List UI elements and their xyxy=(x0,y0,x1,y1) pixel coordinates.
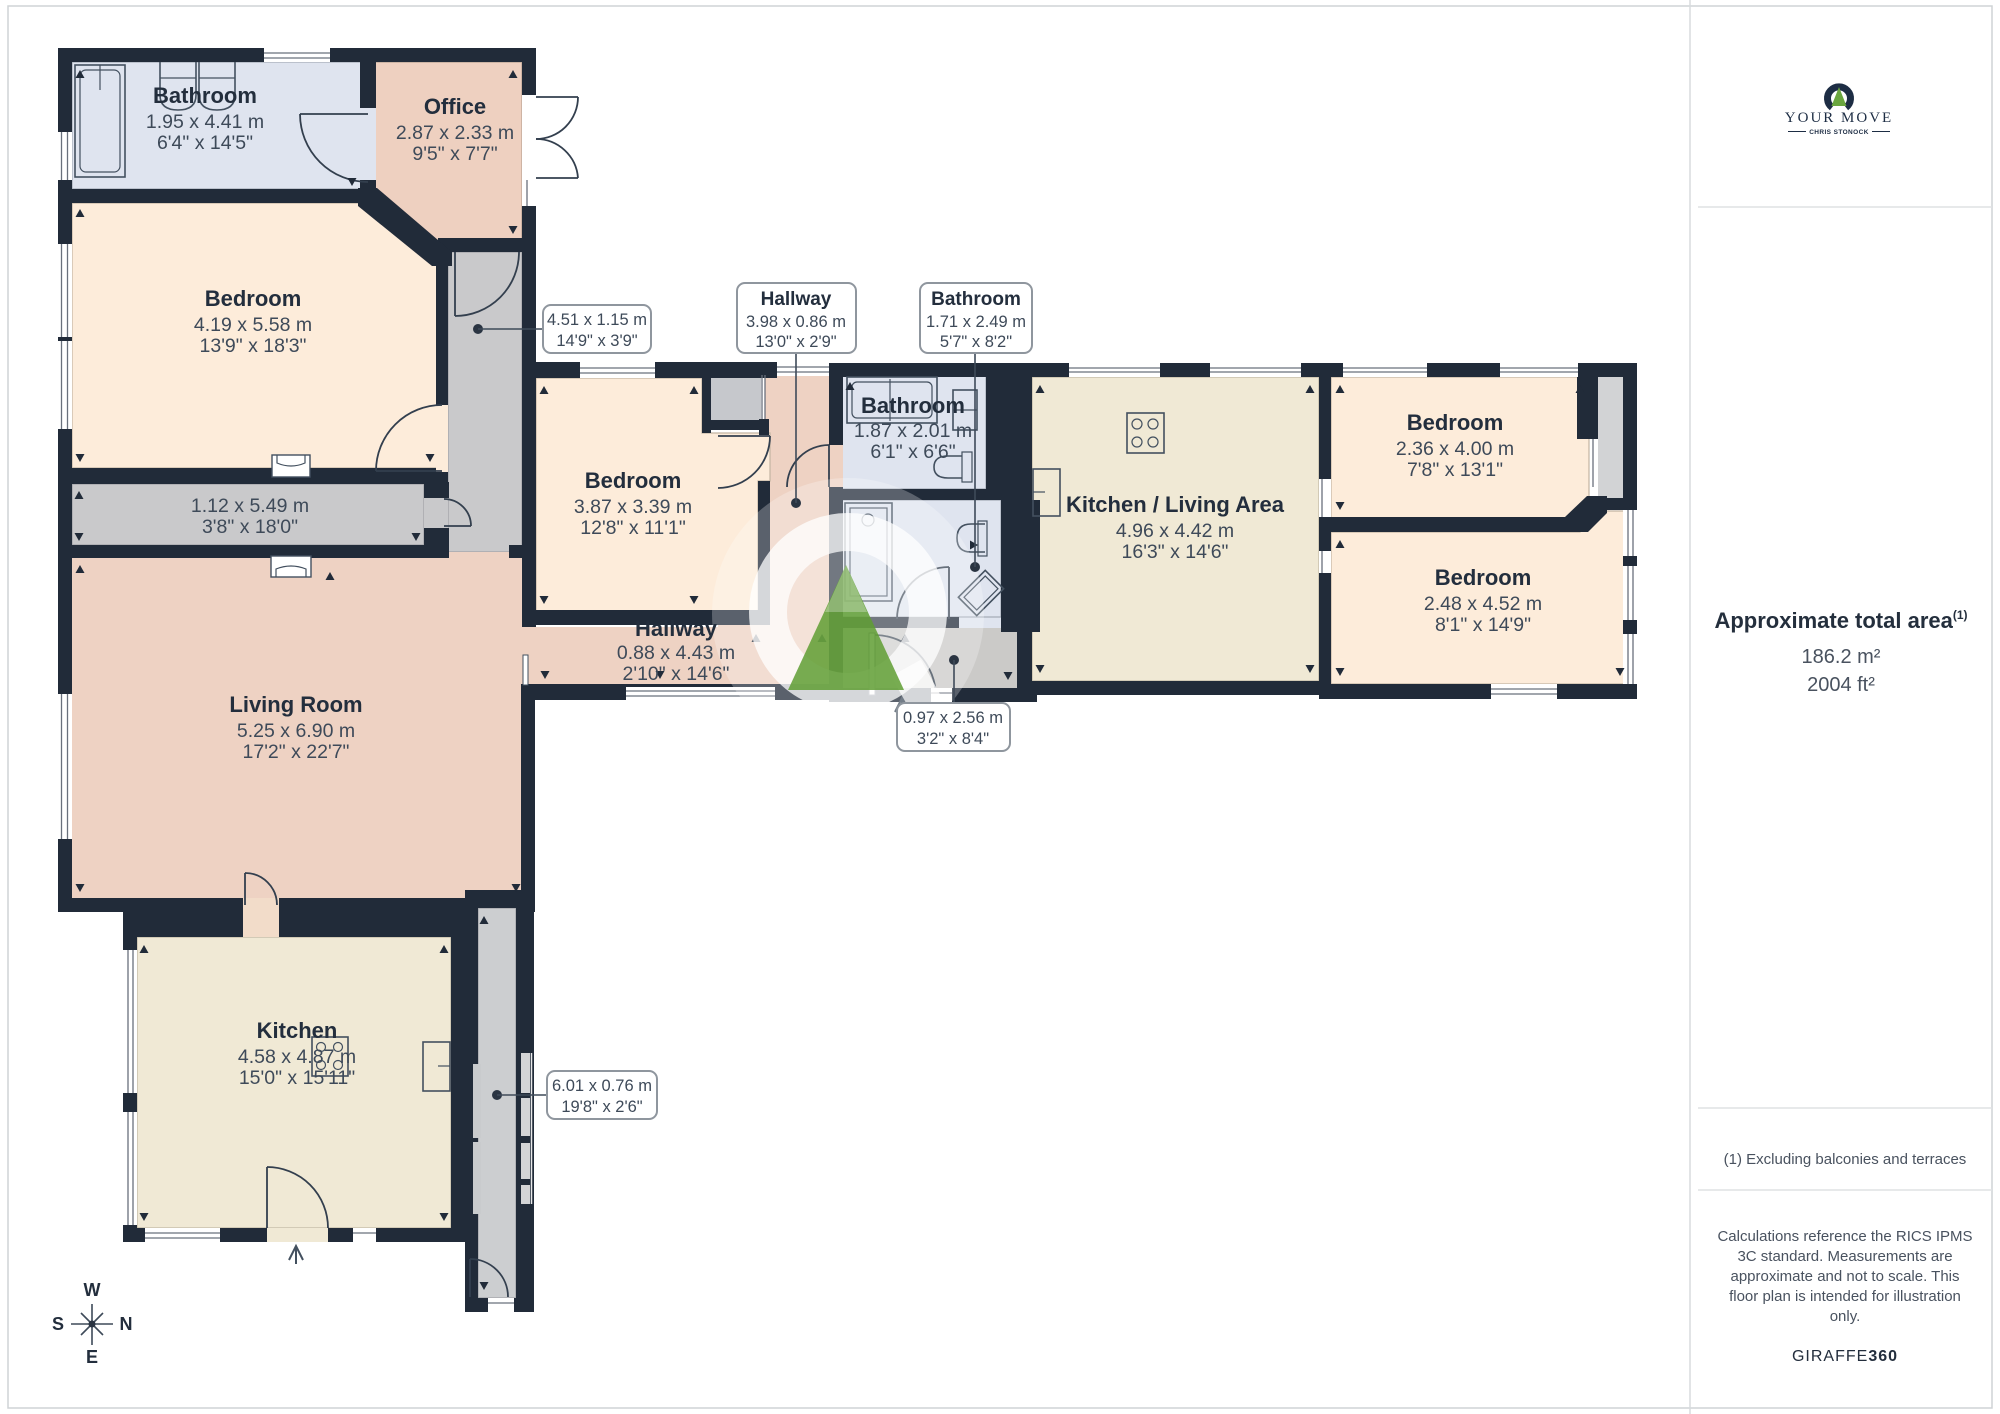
svg-text:9'5" x 7'7": 9'5" x 7'7" xyxy=(412,143,497,165)
svg-text:Bedroom: Bedroom xyxy=(205,286,302,311)
svg-text:Bedroom: Bedroom xyxy=(585,468,682,493)
svg-text:1.95 x 4.41 m: 1.95 x 4.41 m xyxy=(146,111,264,133)
svg-text:186.2 m²: 186.2 m² xyxy=(1802,646,1881,668)
svg-text:3.87 x 3.39 m: 3.87 x 3.39 m xyxy=(574,496,692,518)
svg-text:GIRAFFE360: GIRAFFE360 xyxy=(1792,1348,1898,1365)
svg-text:4.51 x 1.15 m: 4.51 x 1.15 m xyxy=(547,311,647,329)
svg-text:approximate and not to scale.: approximate and not to scale. This xyxy=(1730,1268,1959,1285)
svg-text:(1) Excluding balconies and te: (1) Excluding balconies and terraces xyxy=(1724,1151,1967,1168)
svg-text:Kitchen / Living Area: Kitchen / Living Area xyxy=(1066,492,1285,517)
svg-text:4.96 x 4.42 m: 4.96 x 4.42 m xyxy=(1116,520,1234,542)
svg-text:2'10" x 14'6": 2'10" x 14'6" xyxy=(623,663,730,685)
svg-text:5'7" x 8'2": 5'7" x 8'2" xyxy=(940,333,1012,351)
svg-text:CHRIS STONOCK: CHRIS STONOCK xyxy=(1809,129,1869,136)
svg-text:2.36 x 4.00 m: 2.36 x 4.00 m xyxy=(1396,438,1514,460)
svg-text:3'2" x 8'4": 3'2" x 8'4" xyxy=(917,730,989,748)
svg-text:Living Room: Living Room xyxy=(229,692,362,717)
svg-text:15'0" x 15'11": 15'0" x 15'11" xyxy=(239,1067,355,1089)
svg-text:3.98 x 0.86 m: 3.98 x 0.86 m xyxy=(746,313,846,331)
svg-text:E: E xyxy=(86,1347,98,1367)
svg-text:Bathroom: Bathroom xyxy=(931,289,1021,310)
svg-text:3'8" x 18'0": 3'8" x 18'0" xyxy=(202,516,298,538)
svg-text:16'3" x 14'6": 16'3" x 14'6" xyxy=(1122,541,1229,563)
svg-text:Calculations reference the RIC: Calculations reference the RICS IPMS xyxy=(1717,1228,1972,1245)
svg-text:0.97 x 2.56 m: 0.97 x 2.56 m xyxy=(903,709,1003,727)
svg-text:Bedroom: Bedroom xyxy=(1407,410,1504,435)
svg-text:Bathroom: Bathroom xyxy=(861,393,965,418)
svg-text:7'8" x 13'1": 7'8" x 13'1" xyxy=(1407,459,1503,481)
svg-text:1.87 x 2.01 m: 1.87 x 2.01 m xyxy=(854,420,972,442)
svg-text:Bathroom: Bathroom xyxy=(153,83,257,108)
svg-text:0.88 x 4.43 m: 0.88 x 4.43 m xyxy=(617,642,735,664)
svg-text:Bedroom: Bedroom xyxy=(1435,565,1532,590)
svg-text:6.01 x 0.76 m: 6.01 x 0.76 m xyxy=(552,1077,652,1095)
svg-text:6'4" x 14'5": 6'4" x 14'5" xyxy=(157,132,253,154)
svg-text:Hallway: Hallway xyxy=(635,616,718,641)
svg-text:2.87 x 2.33 m: 2.87 x 2.33 m xyxy=(396,122,514,144)
svg-text:W: W xyxy=(84,1280,101,1300)
svg-text:3C standard. Measurements are: 3C standard. Measurements are xyxy=(1737,1248,1952,1265)
svg-text:Kitchen: Kitchen xyxy=(257,1018,338,1043)
svg-text:17'2" x 22'7": 17'2" x 22'7" xyxy=(243,741,350,763)
svg-text:2.48 x 4.52 m: 2.48 x 4.52 m xyxy=(1424,593,1542,615)
svg-text:13'9" x 18'3": 13'9" x 18'3" xyxy=(200,335,307,357)
svg-text:floor plan is intended for ill: floor plan is intended for illustration xyxy=(1729,1288,1961,1305)
svg-text:8'1" x 14'9": 8'1" x 14'9" xyxy=(1435,614,1531,636)
svg-text:12'8" x 11'1": 12'8" x 11'1" xyxy=(580,517,686,539)
svg-text:S: S xyxy=(52,1314,64,1334)
svg-text:6'1" x 6'6": 6'1" x 6'6" xyxy=(870,441,955,463)
svg-text:19'8" x 2'6": 19'8" x 2'6" xyxy=(561,1098,642,1116)
svg-text:N: N xyxy=(120,1314,133,1334)
svg-text:1.71 x 2.49 m: 1.71 x 2.49 m xyxy=(926,313,1026,331)
svg-text:Office: Office xyxy=(424,94,486,119)
svg-text:YOUR MOVE: YOUR MOVE xyxy=(1785,110,1893,126)
svg-text:4.19 x 5.58 m: 4.19 x 5.58 m xyxy=(194,314,312,336)
svg-text:Hallway: Hallway xyxy=(761,289,832,310)
svg-text:4.58 x 4.87 m: 4.58 x 4.87 m xyxy=(238,1046,356,1068)
svg-text:2004 ft²: 2004 ft² xyxy=(1807,674,1875,696)
svg-text:1.12 x 5.49 m: 1.12 x 5.49 m xyxy=(191,495,309,517)
svg-text:5.25 x 6.90 m: 5.25 x 6.90 m xyxy=(237,720,355,742)
svg-text:only.: only. xyxy=(1830,1308,1861,1325)
svg-text:13'0" x 2'9": 13'0" x 2'9" xyxy=(755,333,836,351)
svg-text:14'9" x 3'9": 14'9" x 3'9" xyxy=(556,332,637,350)
svg-text:Approximate total area(1): Approximate total area(1) xyxy=(1714,608,1967,633)
